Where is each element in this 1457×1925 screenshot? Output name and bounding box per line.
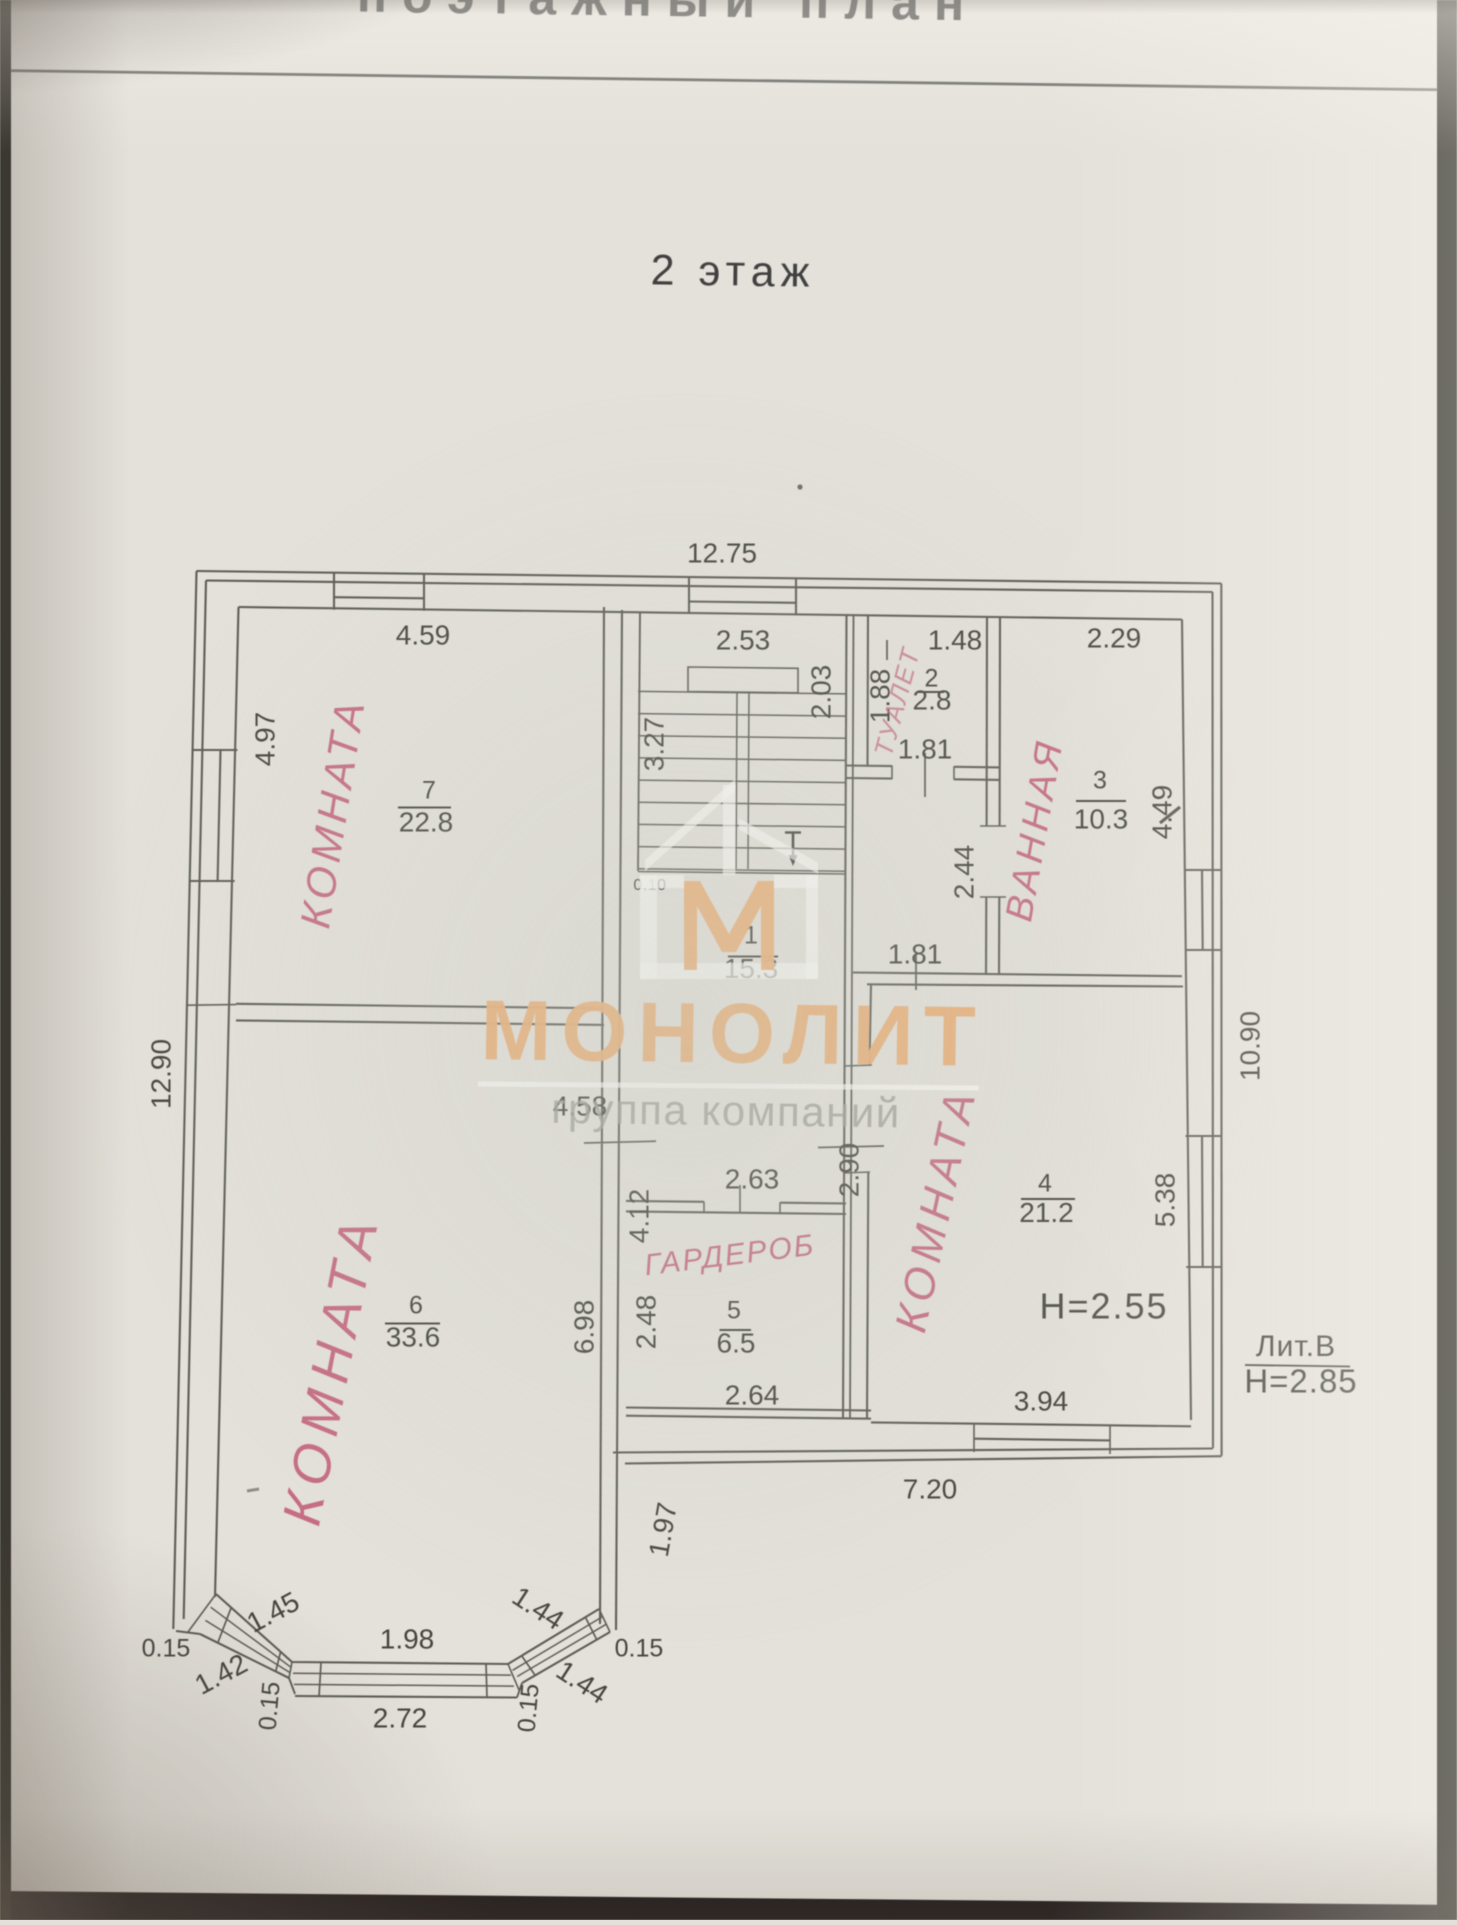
svg-text:группа компаний: группа компаний bbox=[551, 1085, 901, 1137]
svg-text:2.53: 2.53 bbox=[716, 624, 771, 655]
svg-text:2.48: 2.48 bbox=[630, 1295, 661, 1350]
svg-text:22.8: 22.8 bbox=[399, 806, 454, 837]
svg-text:2.90: 2.90 bbox=[833, 1143, 864, 1198]
svg-text:2.64: 2.64 bbox=[725, 1379, 780, 1410]
svg-text:2.44: 2.44 bbox=[948, 845, 979, 900]
svg-text:5.38: 5.38 bbox=[1149, 1173, 1180, 1228]
svg-text:3.94: 3.94 bbox=[1014, 1385, 1069, 1416]
svg-text:6.98: 6.98 bbox=[568, 1300, 599, 1355]
svg-text:1.81: 1.81 bbox=[888, 938, 943, 969]
svg-text:10.90: 10.90 bbox=[1234, 1011, 1265, 1081]
svg-text:21.2: 21.2 bbox=[1019, 1197, 1074, 1228]
svg-text:КОМНАТА: КОМНАТА bbox=[291, 694, 374, 932]
svg-text:1.81: 1.81 bbox=[898, 733, 953, 764]
svg-text:12.75: 12.75 bbox=[687, 537, 757, 568]
svg-text:4.97: 4.97 bbox=[249, 712, 280, 767]
svg-text:МОНОЛИТ: МОНОЛИТ bbox=[480, 983, 986, 1085]
svg-text:КОМНАТА: КОМНАТА bbox=[886, 1082, 986, 1337]
svg-text:1.98: 1.98 bbox=[380, 1623, 435, 1654]
svg-text:2 этаж: 2 этаж bbox=[650, 246, 815, 296]
svg-text:7: 7 bbox=[422, 777, 436, 805]
svg-text:10.3: 10.3 bbox=[1074, 803, 1129, 834]
svg-text:Лит.В: Лит.В bbox=[1256, 1330, 1336, 1363]
svg-text:поэтажный план: поэтажный план bbox=[357, 0, 980, 32]
svg-text:4.12: 4.12 bbox=[623, 1189, 654, 1244]
svg-text:6.5: 6.5 bbox=[717, 1327, 756, 1358]
svg-text:1.44: 1.44 bbox=[507, 1580, 570, 1636]
svg-text:1.45: 1.45 bbox=[242, 1586, 305, 1639]
svg-text:3: 3 bbox=[1093, 767, 1107, 795]
svg-text:3.27: 3.27 bbox=[638, 717, 669, 772]
svg-text:1.48: 1.48 bbox=[928, 624, 983, 655]
svg-text:1.97: 1.97 bbox=[643, 1500, 683, 1559]
svg-text:0.15: 0.15 bbox=[615, 1635, 664, 1663]
svg-text:Н=2.55: Н=2.55 bbox=[1039, 1286, 1168, 1327]
svg-text:0.15: 0.15 bbox=[142, 1635, 191, 1663]
svg-text:4: 4 bbox=[1038, 1170, 1052, 1198]
svg-text:Н=2.85: Н=2.85 bbox=[1244, 1363, 1357, 1400]
svg-text:2.29: 2.29 bbox=[1087, 622, 1142, 653]
svg-text:ГАРДЕРОБ: ГАРДЕРОБ bbox=[643, 1229, 817, 1283]
svg-text:КОМНАТА: КОМНАТА bbox=[272, 1206, 392, 1530]
svg-text:2.72: 2.72 bbox=[373, 1702, 428, 1733]
svg-text:2.63: 2.63 bbox=[725, 1163, 780, 1194]
svg-text:5: 5 bbox=[727, 1297, 741, 1325]
svg-text:0.15: 0.15 bbox=[254, 1680, 286, 1731]
svg-text:7.20: 7.20 bbox=[903, 1473, 958, 1504]
svg-text:1.44: 1.44 bbox=[551, 1654, 614, 1710]
svg-text:6: 6 bbox=[409, 1292, 423, 1320]
svg-text:12.90: 12.90 bbox=[145, 1039, 176, 1109]
svg-text:4.49: 4.49 bbox=[1146, 785, 1177, 840]
svg-text:2.03: 2.03 bbox=[805, 665, 836, 720]
svg-text:2.8: 2.8 bbox=[913, 684, 952, 715]
svg-text:4.59: 4.59 bbox=[396, 619, 451, 650]
svg-text:33.6: 33.6 bbox=[386, 1321, 441, 1352]
svg-text:ВАННАЯ: ВАННАЯ bbox=[998, 735, 1072, 925]
svg-text:0.15: 0.15 bbox=[513, 1682, 545, 1733]
